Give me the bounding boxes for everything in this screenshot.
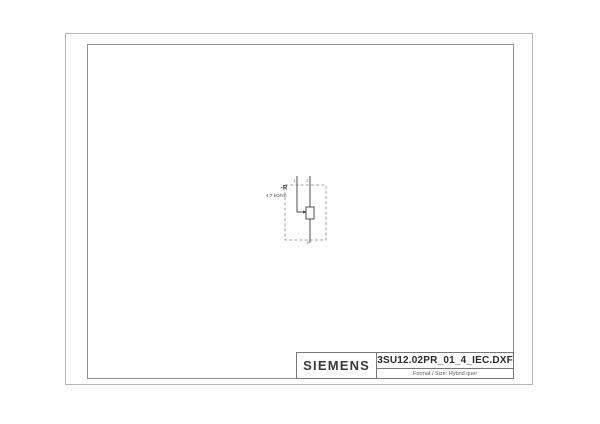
title-block: SIEMENS 3SU12.02PR_01_4_IEC.DXF Format /… [296, 352, 514, 379]
drawing-filename: 3SU12.02PR_01_4_IEC.DXF [377, 355, 513, 366]
component-ref-label: -R [281, 185, 288, 192]
terminal-label-top-left: 1 [293, 179, 295, 183]
title-block-filename-cell: 3SU12.02PR_01_4_IEC.DXF [377, 353, 513, 369]
format-size-label: Format / Size: Hybrid quer [413, 371, 477, 377]
component-value-label: 4,7 kOhm [266, 193, 287, 199]
title-block-right-column: 3SU12.02PR_01_4_IEC.DXF Format / Size: H… [377, 353, 513, 378]
terminal-label-bottom: 3 [306, 241, 308, 245]
resistor-body [306, 207, 314, 219]
terminal-label-top-right: 2 [306, 179, 308, 183]
siemens-logo: SIEMENS [303, 358, 370, 373]
potentiometer-symbol: 1 2 3 -R 4,7 kOhm [255, 160, 345, 255]
title-block-format-cell: Format / Size: Hybrid quer [377, 369, 513, 378]
title-block-brand-cell: SIEMENS [297, 353, 377, 378]
drawing-sheet: 1 2 3 -R 4,7 kOhm SIEMENS 3SU12.02PR_01_… [0, 0, 600, 424]
wiper-lead-line [297, 176, 304, 212]
